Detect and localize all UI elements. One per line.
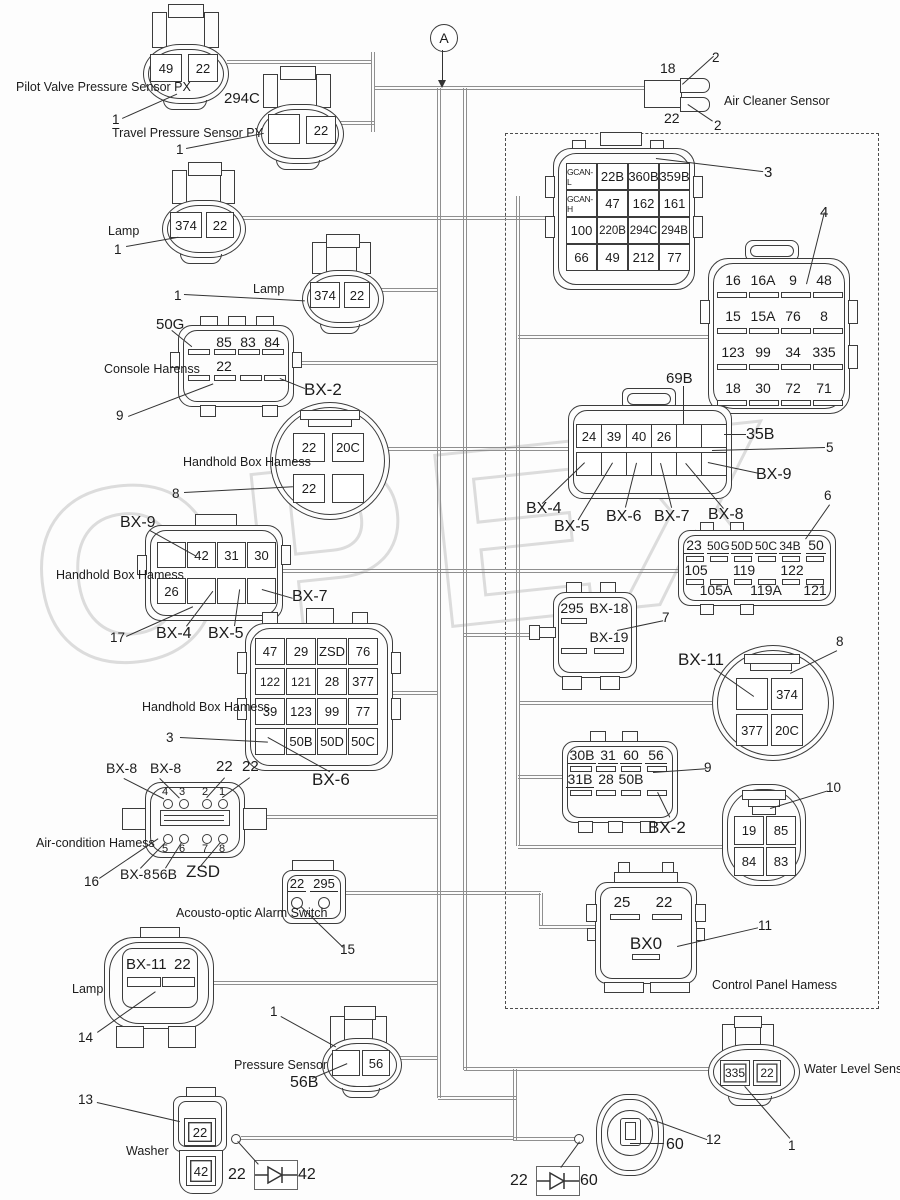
pin-slot	[813, 364, 843, 370]
py-pin-22: 22	[306, 116, 336, 144]
wire	[518, 845, 723, 849]
b9-pin: 31	[598, 747, 618, 764]
pin-slot	[127, 977, 161, 987]
diode-symbol	[536, 1166, 580, 1196]
b9-pin: 60	[620, 747, 642, 764]
wire	[211, 981, 438, 985]
gcan-cell: 294C	[628, 217, 659, 244]
node-a: A	[430, 24, 458, 52]
pin-slot	[652, 914, 682, 920]
c10-ref: 10	[826, 780, 841, 795]
pin-slot	[781, 364, 811, 370]
bx6-side-tab	[391, 652, 401, 674]
wls-tab	[734, 1016, 762, 1028]
wire	[389, 691, 438, 695]
bx2-round-pin: 20C	[332, 433, 364, 462]
bx9-ref: 17	[110, 630, 125, 645]
c4-side-tab	[848, 345, 858, 369]
alarm-ref: 15	[340, 942, 355, 957]
node-a-arrowhead	[438, 80, 446, 88]
pin-slot	[596, 790, 616, 796]
b9-leg	[578, 821, 593, 833]
bx0-pin: 22	[650, 894, 678, 911]
aircon-pin	[218, 799, 228, 809]
wire-trunk	[516, 196, 520, 846]
bx11-round-pin: 377	[736, 714, 768, 746]
console-tag-bx2: BX-2	[304, 380, 342, 400]
py-base	[276, 160, 320, 170]
wiring-diagram: OPEX Control Panel Hamess A 49 22 Pilot …	[0, 0, 900, 1200]
c4-pin: 48	[810, 272, 838, 288]
c7-ref: 7	[662, 610, 670, 625]
aircon-label: Air-condition Hamess	[36, 836, 155, 850]
c12-label: 60	[666, 1136, 684, 1154]
bx2-round-hw	[308, 419, 352, 427]
bx6-tag: BX-6	[312, 770, 350, 790]
lamp-c-ref: 14	[78, 1030, 93, 1045]
b35-cell: 26	[651, 424, 677, 448]
b6-pin: 50C	[755, 539, 777, 554]
px-pin-22: 22	[188, 54, 218, 82]
bx9-tag: BX-4	[156, 625, 192, 643]
console-ref: 9	[116, 408, 124, 423]
b35-tag-69b: 69B	[666, 370, 693, 387]
c4-pin: 8	[810, 308, 838, 324]
diode-symbol	[254, 1160, 298, 1190]
ps-tab	[344, 1006, 376, 1020]
diode2-left: 22	[510, 1172, 528, 1190]
b35-tag-bx5: BX-5	[554, 518, 590, 536]
lamp-a-ref: 1	[114, 242, 122, 257]
b9-tag: BX-2	[648, 818, 686, 838]
aircon-ref: 16	[84, 874, 99, 889]
pin-slot	[610, 914, 640, 920]
c7-pin: 295	[558, 600, 586, 616]
wls-pin-335: 335	[720, 1060, 750, 1086]
gcan-tab	[600, 132, 642, 146]
lamp-a-base	[180, 254, 222, 264]
gcan-cell: 22B	[597, 163, 628, 190]
pin-slot	[162, 977, 195, 987]
bx2-round-ref: 8	[172, 486, 180, 501]
c10-pin: 84	[734, 847, 764, 876]
console-pin: 22	[214, 358, 234, 374]
b6-pin: 121	[800, 582, 830, 598]
aircon-tag: BX-8	[106, 760, 137, 776]
air-cleaner-ref: 2	[714, 118, 722, 133]
b6-ref: 6	[824, 488, 832, 503]
leader-line	[97, 1102, 180, 1122]
bx6-ref: 3	[166, 730, 174, 745]
leader-line	[560, 1141, 580, 1167]
lamp-b-pin-22: 22	[344, 282, 370, 308]
px-base	[163, 100, 207, 110]
b6-pin: 119A	[748, 582, 784, 598]
pin-slot	[717, 364, 747, 370]
gcan-cell: 100	[566, 217, 597, 244]
b35-tag-bx9: BX-9	[756, 466, 792, 484]
diode2-right: 60	[580, 1172, 598, 1190]
pin-slot	[813, 292, 843, 298]
gcan-side-tab	[545, 216, 555, 238]
pin-slot	[813, 400, 843, 406]
px-prong	[204, 12, 219, 48]
pin-slot	[781, 328, 811, 334]
bx11-round-pin: 20C	[771, 714, 803, 746]
wls-base	[728, 1096, 772, 1106]
pin-slot	[749, 364, 779, 370]
lamp-c-pin: BX-11	[126, 956, 167, 973]
lamp-c-pin: 22	[174, 956, 191, 973]
aircon-pin-num: 4	[162, 786, 168, 798]
b35-tag-bx8: BX-8	[708, 506, 744, 524]
air-cleaner-label: Air Cleaner Sensor	[724, 94, 830, 108]
bx9-tag: BX-5	[208, 625, 244, 643]
console-pin: 84	[262, 334, 282, 350]
bx0-side-tab	[695, 904, 706, 922]
c4-pin: 18	[719, 380, 747, 396]
pin-slot	[570, 790, 592, 796]
wire	[438, 1096, 516, 1100]
ps-base	[342, 1088, 380, 1098]
c4-side-tab	[848, 300, 858, 324]
lamp-c-label: Lamp	[72, 982, 103, 996]
bx6-cell: 29	[286, 638, 316, 665]
wire-trunk	[437, 88, 441, 1098]
px-tab	[168, 4, 204, 18]
py-tab	[280, 66, 316, 80]
aircon-slot-inner	[164, 815, 224, 821]
aircon-tag: 22	[242, 758, 259, 775]
c4-pin: 15	[719, 308, 747, 324]
gcan-cell: 360B	[628, 163, 659, 190]
bx0-base	[604, 982, 644, 993]
bx9-label: Handhold Box Hamess	[56, 568, 184, 582]
pin-slot	[632, 954, 660, 960]
c10-pin: 85	[766, 816, 796, 845]
wire	[227, 60, 372, 64]
washer-ref: 13	[78, 1092, 93, 1107]
gcan-side-tab	[693, 176, 703, 198]
c4-side-tab	[700, 300, 710, 324]
lamp-b-prong	[312, 242, 327, 274]
leader-line	[683, 386, 684, 424]
gcan-cell: 66	[566, 244, 597, 271]
c4-pin: 123	[719, 344, 747, 360]
bx6-cell: 76	[348, 638, 378, 665]
wire-trunk	[463, 88, 467, 1070]
c4-pin: 30	[748, 380, 778, 396]
b35-cell-blank	[676, 424, 702, 448]
bx0-side-tab	[586, 904, 597, 922]
gcan-cell: GCAN-H	[566, 190, 597, 217]
pin-slot	[781, 400, 811, 406]
wire	[290, 361, 438, 365]
b35-tag-bx6: BX-6	[606, 508, 642, 526]
lamp-a-label: Lamp	[108, 224, 139, 238]
lamp-c-leg	[168, 1026, 196, 1048]
b35-cell: 24	[576, 424, 602, 448]
bx6-cell: 122	[255, 668, 285, 695]
px-prong	[152, 12, 167, 48]
gcan-cell: 77	[659, 244, 690, 271]
bx2-round-pin-blank	[332, 474, 364, 503]
bx6-cell: 50D	[317, 728, 347, 755]
console-pin: 85	[214, 334, 234, 350]
wire	[279, 569, 679, 573]
bx6-cell: 77	[348, 698, 378, 725]
lamp-a-pin-22: 22	[206, 212, 234, 238]
pin-slot	[782, 579, 800, 585]
wire	[518, 335, 708, 339]
console-leg	[200, 405, 216, 417]
c7-pin: BX-19	[589, 629, 629, 645]
aircon-pin-num: 7	[202, 843, 208, 855]
b9-pin: 28	[596, 771, 616, 787]
b9-pin: 50B	[616, 771, 646, 787]
b6-pin: 50D	[731, 539, 753, 554]
bx2-round-label: Handhold Box Hamess	[183, 455, 311, 469]
bx11-round-hw	[750, 663, 792, 671]
bx9-cell-blank	[217, 578, 246, 604]
diode1-right: 42	[298, 1166, 316, 1184]
b35-cell-blank	[626, 452, 652, 476]
gcan-side-tab	[693, 216, 703, 238]
wls-label: Water Level Sensor	[804, 1062, 900, 1076]
wire	[371, 52, 375, 132]
leader-line	[724, 434, 746, 435]
bx9-side-tab	[281, 545, 291, 565]
aircon-side-hw	[243, 808, 267, 830]
ps-ref: 1	[270, 1004, 278, 1019]
console-leg	[262, 405, 278, 417]
alarm-pin: 22	[288, 876, 306, 892]
washer-pin-42: 42	[186, 1156, 216, 1186]
leader-line	[281, 1016, 337, 1047]
bx0-base	[650, 982, 690, 993]
wire	[241, 1136, 514, 1140]
wire	[518, 775, 563, 779]
b6-pin: 105	[682, 562, 710, 578]
c4-pin: 34	[780, 344, 806, 360]
wire	[386, 447, 569, 451]
pin-slot	[621, 790, 641, 796]
c4-pin: 16	[719, 272, 747, 288]
wire	[340, 891, 541, 895]
leader-line	[237, 1141, 258, 1165]
gcan-cell: 161	[659, 190, 690, 217]
ps-label: Pressure Sensor	[234, 1058, 327, 1072]
bx0-pin: 25	[608, 894, 636, 911]
b35-cell-blank	[651, 452, 677, 476]
aircon-pin	[163, 799, 173, 809]
wire	[380, 288, 438, 292]
air-cleaner-ref: 2	[712, 50, 720, 65]
leader-line	[184, 294, 305, 301]
gcan-ref: 3	[764, 164, 772, 181]
bx11-round-pin: 374	[771, 678, 803, 710]
c4-pin: 335	[810, 344, 838, 360]
pin-slot	[806, 556, 824, 562]
c7-leg	[562, 676, 582, 690]
bx11-round-ref: 8	[836, 634, 844, 649]
b9-pin: 30B	[568, 747, 596, 764]
b6-pin: 50G	[707, 539, 729, 554]
gcan-cell: 294B	[659, 217, 690, 244]
b35-cell-blank	[676, 452, 702, 476]
b6-pin: 23	[684, 537, 704, 554]
bx6-cell: 28	[317, 668, 347, 695]
pin-slot	[749, 292, 779, 298]
px-pin-49: 49	[150, 54, 182, 82]
lamp-a-tab	[188, 162, 222, 176]
wls-ref: 1	[788, 1138, 796, 1153]
bx6-cell: 47	[255, 638, 285, 665]
b9-leg	[608, 821, 623, 833]
aircon-tag: ZSD	[186, 862, 220, 882]
pin-slot	[188, 349, 210, 355]
c4-pin: 15A	[748, 308, 778, 324]
bx9-tag: BX-7	[292, 588, 328, 606]
b6-pin: 105A	[698, 582, 734, 598]
wire	[240, 216, 553, 220]
b35-tag-bx7: BX-7	[654, 508, 690, 526]
pin-slot	[781, 292, 811, 298]
alarm-pin: 295	[310, 876, 338, 892]
aircon-pin-num: 3	[179, 786, 185, 798]
wire	[520, 701, 712, 705]
c4-pin: 72	[780, 380, 806, 396]
bx6-label: Handhold Box Hamess	[142, 700, 270, 714]
aircon-tag: 56B	[152, 866, 177, 882]
bx6-cell: 121	[286, 668, 316, 695]
bx9-cell: 30	[247, 542, 276, 568]
b6-pin: 122	[778, 562, 806, 578]
pin-slot	[710, 556, 728, 562]
air-cleaner-pin-18: 18	[660, 60, 676, 76]
py-prong	[316, 74, 331, 108]
gcan-cell: 49	[597, 244, 628, 271]
c7-leg	[600, 676, 620, 690]
pin-slot	[561, 618, 587, 624]
bx6-cell: 377	[348, 668, 378, 695]
c12-ref: 12	[706, 1132, 721, 1147]
air-cleaner-pin-22: 22	[664, 110, 680, 126]
b6-leg	[740, 604, 754, 615]
leader-line	[630, 1143, 664, 1144]
bx6-cell: 99	[317, 698, 347, 725]
aircon-side-hw	[122, 808, 146, 830]
gcan-cell: 359B	[659, 163, 690, 190]
aircon-tag: BX-8	[150, 760, 181, 776]
bx6-side-tab	[237, 652, 247, 674]
lamp-a-prong	[220, 170, 235, 204]
b35-ref: 5	[826, 440, 834, 455]
b6-pin: 50	[806, 537, 826, 554]
py-prong	[263, 74, 278, 108]
gcan-cell: 162	[628, 190, 659, 217]
b6-pin: 34B	[779, 539, 801, 554]
c4-pin: 16A	[748, 272, 778, 288]
console-label: Console Harenss	[104, 362, 200, 376]
bx0-name: BX0	[624, 934, 668, 954]
lamp-b-pin-374: 374	[310, 282, 340, 308]
b35-cell-blank	[701, 424, 727, 448]
washer-pin-22: 22	[184, 1118, 216, 1146]
c10-pin: 83	[766, 847, 796, 876]
wire	[513, 1137, 579, 1141]
node-a-arrow-line	[442, 50, 443, 82]
bx9-cell: 31	[217, 542, 246, 568]
pin-slot	[749, 400, 779, 406]
b35-cell-blank	[576, 452, 602, 476]
ps-pin-56: 56	[362, 1050, 390, 1076]
wire	[513, 1069, 517, 1140]
py-code: 294C	[224, 90, 260, 107]
bx9-cell: 42	[187, 542, 216, 568]
pin-slot	[717, 400, 747, 406]
gcan-side-tab	[545, 176, 555, 198]
b9-pin: 31B	[566, 771, 594, 788]
lamp-a-prong	[172, 170, 187, 204]
b9-pin: 56	[645, 747, 667, 764]
c10-pin: 19	[734, 816, 764, 845]
bx6-cell: 50C	[348, 728, 378, 755]
c7-hw	[529, 625, 540, 640]
py-ref: 1	[176, 142, 184, 157]
b35-tag-35b: 35B	[746, 426, 774, 444]
wire	[265, 815, 438, 819]
bx11-round-tag: BX-11	[678, 650, 724, 670]
pin-slot	[717, 292, 747, 298]
b6-pin: 119	[730, 562, 758, 578]
b35-cell: 40	[626, 424, 652, 448]
b35-cell: 39	[601, 424, 627, 448]
lamp-b-label: Lamp	[253, 282, 284, 296]
pin-slot	[813, 328, 843, 334]
aircon-tag: 22	[216, 758, 233, 775]
diode1-left: 22	[228, 1166, 246, 1184]
px-label: Pilot Valve Pressure Sensor PX	[16, 80, 191, 94]
aircon-pin-num: 8	[219, 843, 225, 855]
pin-slot	[240, 375, 262, 381]
pin-slot	[561, 648, 587, 654]
wire	[340, 121, 374, 125]
pin-slot	[214, 375, 236, 381]
py-pin-blank	[268, 114, 300, 144]
bx6-cell: ZSD	[317, 638, 347, 665]
pin-slot	[594, 648, 624, 654]
c12-key-inner	[625, 1122, 636, 1140]
bx0-side-tab	[587, 928, 596, 941]
lamp-a-pin-374: 374	[170, 212, 202, 238]
console-side-tab	[292, 352, 302, 368]
c4-pin: 99	[748, 344, 778, 360]
lamp-b-base	[320, 324, 360, 334]
lamp-c-leg	[116, 1026, 144, 1048]
wire	[464, 1067, 710, 1071]
wire	[374, 86, 646, 90]
control-panel-label: Control Panel Hamess	[712, 978, 837, 992]
c4-pin: 9	[780, 272, 806, 288]
pin-slot	[758, 556, 776, 562]
bx2-round-pin: 22	[293, 474, 325, 503]
bx6-cell: 123	[286, 698, 316, 725]
bx6-side-tab	[391, 698, 401, 720]
aircon-pin	[179, 799, 189, 809]
air-cleaner-body	[644, 80, 682, 108]
alarm-label: Acousto-optic Alarm Switch	[176, 906, 327, 920]
